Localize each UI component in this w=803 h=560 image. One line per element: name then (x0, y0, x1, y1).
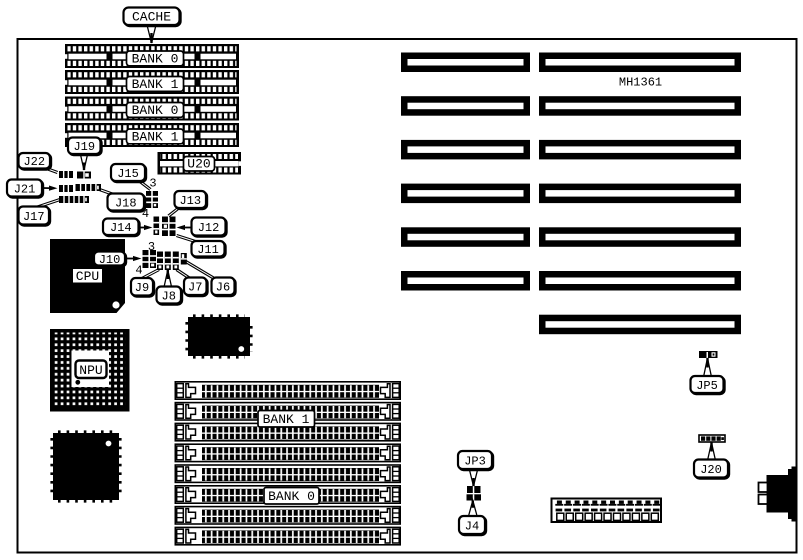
svg-text:CACHE: CACHE (132, 10, 171, 25)
svg-text:3: 3 (148, 240, 155, 254)
svg-text:U20: U20 (187, 157, 210, 172)
svg-text:MH1361: MH1361 (619, 76, 662, 90)
svg-text:J18: J18 (115, 196, 137, 210)
svg-text:J20: J20 (700, 463, 722, 477)
svg-text:BANK 0: BANK 0 (268, 489, 315, 504)
svg-text:J12: J12 (198, 221, 220, 235)
svg-text:J11: J11 (197, 243, 219, 257)
svg-text:J8: J8 (162, 289, 176, 303)
svg-text:JP3: JP3 (464, 454, 486, 468)
svg-text:J9: J9 (135, 281, 149, 295)
svg-text:BANK 1: BANK 1 (263, 412, 310, 427)
svg-text:NPU: NPU (79, 363, 102, 378)
svg-text:J7: J7 (188, 281, 202, 295)
svg-text:J14: J14 (110, 221, 132, 235)
svg-text:J4: J4 (465, 519, 479, 533)
svg-text:J21: J21 (14, 182, 36, 196)
svg-text:J10: J10 (99, 253, 121, 267)
svg-text:J15: J15 (117, 167, 139, 181)
svg-text:JP5: JP5 (696, 379, 718, 393)
svg-text:J19: J19 (73, 140, 95, 154)
svg-text:BANK 1: BANK 1 (132, 129, 179, 144)
svg-text:4: 4 (135, 264, 142, 278)
svg-text:J6: J6 (216, 281, 230, 295)
svg-text:BANK 0: BANK 0 (132, 51, 179, 66)
svg-text:J13: J13 (179, 194, 201, 208)
svg-text:CPU: CPU (76, 269, 99, 284)
svg-text:BANK 0: BANK 0 (132, 103, 179, 118)
svg-text:BANK 1: BANK 1 (132, 77, 179, 92)
svg-text:J22: J22 (23, 155, 45, 169)
svg-text:J17: J17 (23, 210, 45, 224)
